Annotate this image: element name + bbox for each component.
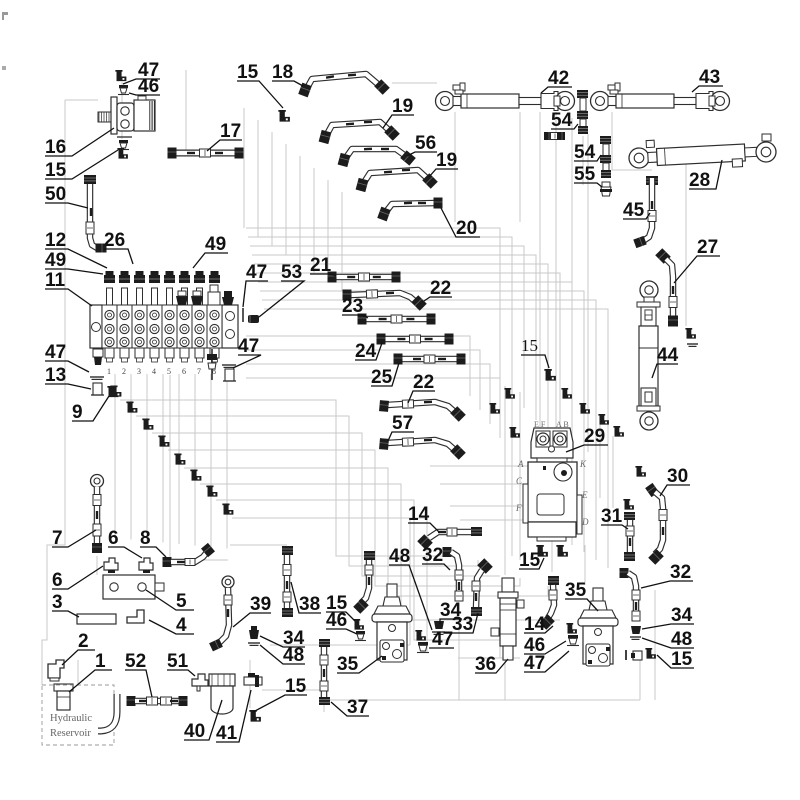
svg-text:15: 15 bbox=[671, 649, 693, 670]
svg-text:33: 33 bbox=[452, 614, 473, 635]
svg-text:52: 52 bbox=[125, 651, 146, 672]
svg-text:27: 27 bbox=[697, 237, 718, 258]
svg-text:19: 19 bbox=[436, 150, 457, 171]
svg-text:6: 6 bbox=[52, 570, 63, 591]
svg-text:57: 57 bbox=[392, 413, 413, 434]
svg-text:Reservoir: Reservoir bbox=[50, 728, 91, 739]
svg-text:47: 47 bbox=[45, 342, 66, 363]
svg-text:19: 19 bbox=[392, 96, 413, 117]
svg-text:43: 43 bbox=[699, 67, 720, 88]
svg-text:31: 31 bbox=[601, 506, 623, 527]
svg-text:A B: A B bbox=[556, 420, 569, 429]
svg-text:28: 28 bbox=[689, 170, 710, 191]
svg-text:44: 44 bbox=[657, 345, 679, 366]
svg-text:42: 42 bbox=[548, 68, 569, 89]
svg-text:48: 48 bbox=[283, 645, 304, 666]
svg-text:11: 11 bbox=[45, 270, 66, 291]
svg-text:55: 55 bbox=[574, 164, 596, 185]
svg-text:47: 47 bbox=[246, 262, 267, 283]
svg-text:49: 49 bbox=[205, 234, 226, 255]
svg-text:9: 9 bbox=[72, 402, 83, 423]
svg-text:5: 5 bbox=[176, 591, 187, 612]
svg-text:14: 14 bbox=[524, 614, 546, 635]
svg-text:C: C bbox=[516, 476, 523, 486]
svg-text:48: 48 bbox=[389, 546, 410, 567]
svg-text:29: 29 bbox=[584, 426, 605, 447]
svg-text:16: 16 bbox=[45, 137, 66, 158]
svg-text:38: 38 bbox=[299, 594, 320, 615]
svg-text:4: 4 bbox=[176, 615, 187, 636]
svg-text:47: 47 bbox=[524, 653, 545, 674]
svg-text:Hydraulic: Hydraulic bbox=[50, 713, 92, 724]
svg-text:53: 53 bbox=[281, 262, 302, 283]
svg-text:34: 34 bbox=[671, 605, 693, 626]
svg-text:56: 56 bbox=[415, 133, 436, 154]
svg-text:46: 46 bbox=[138, 76, 159, 97]
svg-text:K: K bbox=[579, 459, 587, 469]
svg-text:35: 35 bbox=[337, 654, 359, 675]
svg-text:25: 25 bbox=[371, 367, 393, 388]
svg-text:39: 39 bbox=[250, 594, 271, 615]
svg-text:15: 15 bbox=[285, 676, 307, 697]
svg-text:15: 15 bbox=[45, 160, 67, 181]
svg-text:E F: E F bbox=[534, 420, 546, 429]
svg-text:54: 54 bbox=[574, 142, 596, 163]
svg-text:47: 47 bbox=[238, 336, 259, 357]
svg-text:5: 5 bbox=[167, 367, 171, 376]
svg-text:3: 3 bbox=[137, 367, 141, 376]
svg-text:40: 40 bbox=[184, 721, 205, 742]
svg-text:14: 14 bbox=[408, 504, 430, 525]
svg-text:F: F bbox=[515, 503, 522, 513]
svg-text:24: 24 bbox=[355, 341, 377, 362]
svg-text:41: 41 bbox=[216, 723, 238, 744]
svg-text:13: 13 bbox=[45, 365, 66, 386]
svg-text:22: 22 bbox=[430, 278, 451, 299]
svg-text:1: 1 bbox=[107, 367, 111, 376]
svg-text:15: 15 bbox=[519, 550, 541, 571]
svg-text:6: 6 bbox=[108, 528, 119, 549]
svg-text:D: D bbox=[581, 517, 589, 527]
svg-text:15: 15 bbox=[237, 62, 259, 83]
svg-text:6: 6 bbox=[182, 367, 186, 376]
svg-text:A: A bbox=[517, 459, 524, 469]
svg-text:37: 37 bbox=[347, 697, 368, 718]
svg-text:4: 4 bbox=[152, 367, 156, 376]
svg-text:18: 18 bbox=[272, 62, 293, 83]
svg-text:50: 50 bbox=[45, 184, 66, 205]
svg-text:32: 32 bbox=[670, 562, 691, 583]
svg-text:49: 49 bbox=[45, 250, 66, 271]
svg-text:7: 7 bbox=[197, 367, 201, 376]
svg-text:51: 51 bbox=[167, 651, 189, 672]
svg-text:8: 8 bbox=[140, 528, 151, 549]
svg-text:22: 22 bbox=[413, 372, 434, 393]
svg-text:2: 2 bbox=[122, 367, 126, 376]
svg-text:47: 47 bbox=[432, 629, 453, 650]
svg-text:54: 54 bbox=[551, 110, 573, 131]
svg-text:1: 1 bbox=[95, 651, 106, 672]
svg-text:20: 20 bbox=[456, 218, 477, 239]
svg-text:45: 45 bbox=[623, 200, 645, 221]
svg-text:35: 35 bbox=[565, 580, 587, 601]
svg-text:36: 36 bbox=[475, 654, 496, 675]
svg-text:2: 2 bbox=[78, 631, 89, 652]
svg-text:7: 7 bbox=[52, 528, 63, 549]
svg-text:17: 17 bbox=[220, 121, 241, 142]
svg-text:32: 32 bbox=[422, 545, 443, 566]
svg-text:23: 23 bbox=[342, 296, 363, 317]
svg-text:E: E bbox=[581, 490, 588, 500]
svg-text:48: 48 bbox=[671, 629, 692, 650]
svg-text:3: 3 bbox=[52, 592, 63, 613]
svg-text:46: 46 bbox=[326, 610, 347, 631]
svg-text:26: 26 bbox=[104, 230, 125, 251]
svg-text:15: 15 bbox=[521, 336, 538, 355]
svg-text:30: 30 bbox=[667, 466, 688, 487]
svg-text:12: 12 bbox=[45, 230, 66, 251]
svg-text:21: 21 bbox=[310, 255, 332, 276]
